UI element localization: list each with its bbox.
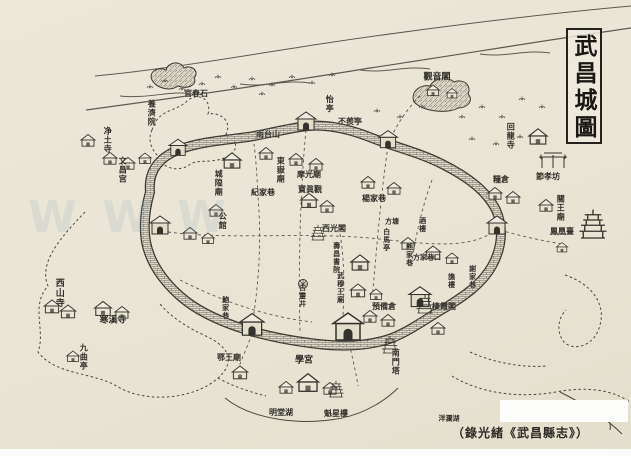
map-label: 公館: [219, 212, 227, 230]
map-label: 預備倉: [372, 302, 396, 310]
map-label: 城隍廟: [215, 170, 223, 197]
map-label: 回龍寺: [507, 123, 515, 150]
map-label: 譙樓: [448, 273, 455, 289]
map-title: 武昌城圖: [566, 28, 602, 144]
map-label: 雨台山: [256, 130, 280, 138]
map-label: 怡亭: [326, 95, 334, 113]
source-caption: （錄光緒《武昌縣志》）: [452, 424, 628, 441]
map-label: 鳳凰臺: [550, 227, 574, 235]
map-label: 謝家巷: [469, 265, 476, 289]
map-label: 明堂湖: [269, 408, 293, 416]
map-label: 鮑家巷: [222, 296, 229, 320]
map-label: 方塘: [385, 217, 399, 224]
map-label: 棲霞閣: [432, 302, 456, 310]
map-label: 糧倉: [493, 175, 509, 183]
map-label: 酒樓: [419, 217, 426, 233]
map-label: 學宮: [295, 356, 313, 365]
map-label: 方家巷口: [413, 253, 441, 260]
map-label: 西山寺: [53, 278, 62, 308]
map-label: 文昌宫: [119, 157, 127, 184]
map-label: 白馬亭: [383, 228, 390, 252]
label-layer: 官春石養濟院净土寺文昌宫雨台山怡亭不羨亭觀音閣回龍寺糧倉節孝坊關王廟鳳凰臺西山寺…: [0, 0, 631, 456]
map-label: 摩光廟: [297, 170, 321, 178]
map-label: 寶眞觀: [298, 185, 322, 193]
map-label: 不羨亭: [338, 117, 362, 125]
map-label: 洋瀾湖: [439, 414, 460, 421]
white-patch: [500, 400, 628, 422]
map-label: 西光閣: [322, 224, 346, 232]
map-label: 古靈井: [299, 284, 306, 308]
map-label: 九曲亭: [80, 344, 88, 371]
map-label: 觀音閣: [423, 73, 450, 82]
map-label: 節孝坊: [536, 172, 560, 180]
map-label: 壽昌書院: [333, 242, 340, 274]
map-label: 紀家巷: [251, 188, 275, 196]
map-label: 寒溪寺: [99, 316, 126, 325]
map-canvas: WWW 官春石養濟院净土寺文昌宫雨台山怡亭不羨亭觀音閣回龍寺糧倉節孝坊關王廟鳳凰…: [0, 0, 631, 456]
map-label: 官春石: [184, 89, 208, 97]
map-label: 楊家巷: [362, 194, 386, 202]
map-label: 東嶽廟: [277, 157, 285, 184]
map-label: 武穆王廟: [337, 272, 344, 304]
page-edge: [0, 449, 631, 456]
map-label: 净土寺: [104, 127, 112, 154]
map-label: 鄂王廟: [217, 353, 241, 361]
map-label: 南門塔: [392, 349, 400, 376]
map-label: 關王廟: [557, 195, 565, 222]
map-label: 養濟院: [148, 100, 156, 127]
map-label: 魁星樓: [324, 409, 348, 417]
